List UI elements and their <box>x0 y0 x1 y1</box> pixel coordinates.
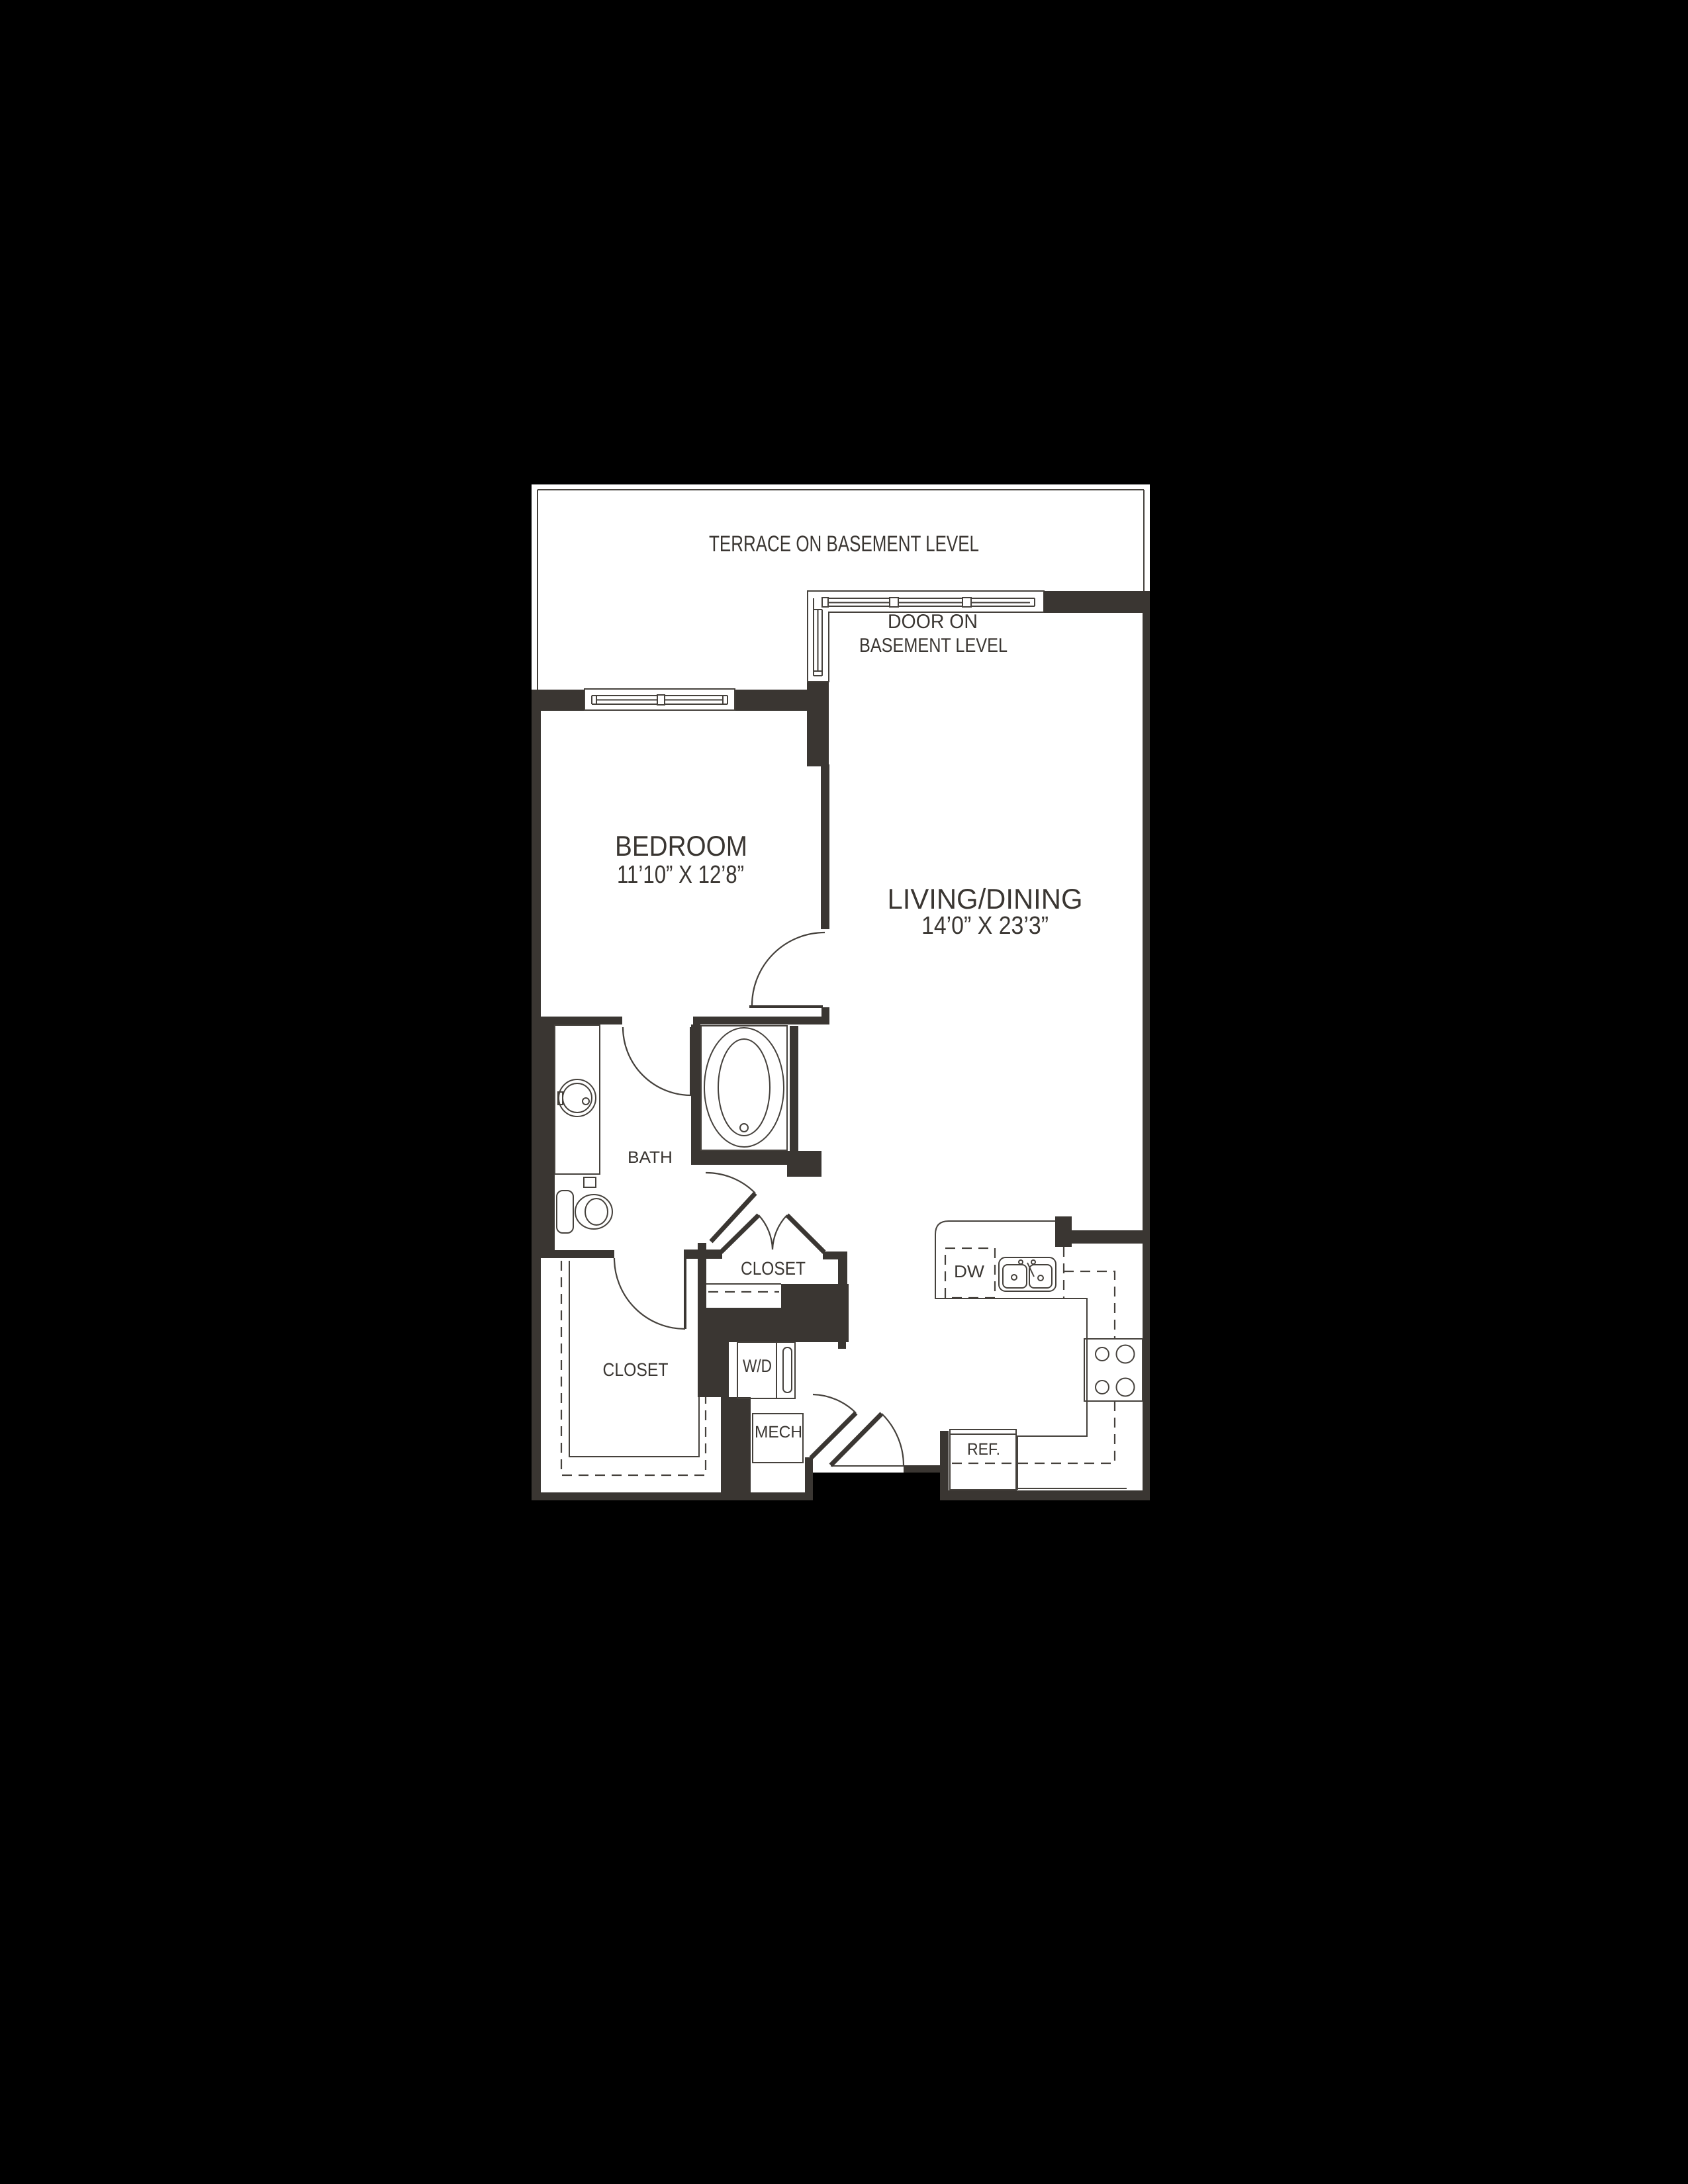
svg-text:BEDROOM: BEDROOM <box>615 831 747 862</box>
svg-text:14’0” X 23’3”: 14’0” X 23’3” <box>921 912 1049 940</box>
svg-text:LIVING/DINING: LIVING/DINING <box>888 884 1083 915</box>
svg-text:DW: DW <box>954 1261 984 1281</box>
svg-text:BATH: BATH <box>628 1148 673 1167</box>
svg-text:BASEMENT LEVEL: BASEMENT LEVEL <box>859 635 1008 657</box>
svg-text:MECH: MECH <box>755 1423 802 1441</box>
svg-text:CLOSET: CLOSET <box>603 1359 669 1380</box>
svg-text:CLOSET: CLOSET <box>741 1258 806 1279</box>
svg-text:11’10” X 12’8”: 11’10” X 12’8” <box>617 861 744 889</box>
svg-text:TERRACE ON BASEMENT LEVEL: TERRACE ON BASEMENT LEVEL <box>709 531 979 557</box>
svg-text:REF.: REF. <box>967 1440 1000 1459</box>
svg-text:DOOR ON: DOOR ON <box>888 611 978 633</box>
svg-text:W/D: W/D <box>743 1356 772 1376</box>
